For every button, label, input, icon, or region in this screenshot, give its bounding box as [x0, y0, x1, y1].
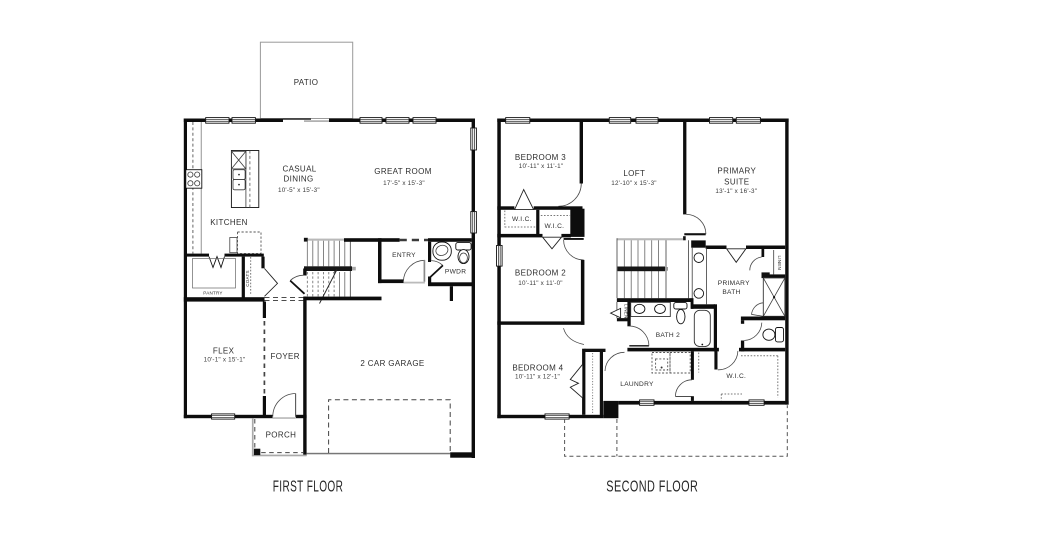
- svg-text:BEDROOM 4: BEDROOM 4: [512, 363, 563, 372]
- svg-text:LAUNDRY: LAUNDRY: [620, 381, 654, 388]
- svg-text:COATS: COATS: [245, 270, 250, 286]
- svg-text:BATH 2: BATH 2: [656, 332, 680, 339]
- svg-text:10'-11" x 12'-1": 10'-11" x 12'-1": [515, 373, 560, 380]
- svg-text:SECOND FLOOR: SECOND FLOOR: [606, 479, 698, 496]
- svg-text:W.I.C.: W.I.C.: [512, 216, 532, 223]
- svg-text:2 CAR GARAGE: 2 CAR GARAGE: [360, 359, 424, 368]
- svg-text:W.I.C.: W.I.C.: [545, 223, 565, 230]
- svg-text:10'-1" x 15'-1": 10'-1" x 15'-1": [204, 357, 246, 364]
- svg-text:PRIMARY: PRIMARY: [717, 166, 756, 175]
- svg-text:CASUAL: CASUAL: [282, 164, 316, 173]
- svg-text:FLEX: FLEX: [213, 346, 235, 355]
- svg-text:10'-11" x 11'-0": 10'-11" x 11'-0": [518, 280, 563, 287]
- svg-text:FOYER: FOYER: [271, 352, 300, 361]
- svg-text:PWDR: PWDR: [445, 269, 466, 276]
- svg-text:10'-11" x 11'-1": 10'-11" x 11'-1": [519, 163, 564, 170]
- svg-text:DINING: DINING: [284, 175, 314, 184]
- svg-text:BATH: BATH: [722, 289, 740, 296]
- svg-text:LINEN: LINEN: [777, 256, 782, 271]
- svg-text:17'-5" x 15'-3": 17'-5" x 15'-3": [383, 180, 425, 187]
- svg-text:10'-5" x 15'-3": 10'-5" x 15'-3": [278, 187, 320, 194]
- svg-text:PANTRY: PANTRY: [203, 291, 222, 296]
- svg-text:BEDROOM 2: BEDROOM 2: [515, 269, 566, 278]
- svg-text:SUITE: SUITE: [724, 178, 749, 187]
- svg-text:ENTRY: ENTRY: [392, 252, 416, 259]
- svg-text:PORCH: PORCH: [266, 430, 297, 439]
- svg-text:12'-10" x 15'-3": 12'-10" x 15'-3": [611, 180, 656, 187]
- svg-text:FIRST FLOOR: FIRST FLOOR: [273, 479, 344, 496]
- svg-text:PRIMARY: PRIMARY: [718, 280, 750, 287]
- svg-text:13'-1" x 16'-3": 13'-1" x 16'-3": [715, 188, 757, 195]
- svg-text:KITCHEN: KITCHEN: [210, 218, 248, 227]
- svg-text:BEDROOM 3: BEDROOM 3: [515, 153, 566, 162]
- svg-text:LOFT: LOFT: [623, 169, 645, 178]
- svg-text:W.I.C.: W.I.C.: [726, 373, 746, 380]
- svg-text:PATIO: PATIO: [294, 78, 319, 87]
- svg-text:GREAT ROOM: GREAT ROOM: [374, 167, 431, 176]
- svg-text:LINEN: LINEN: [624, 304, 629, 319]
